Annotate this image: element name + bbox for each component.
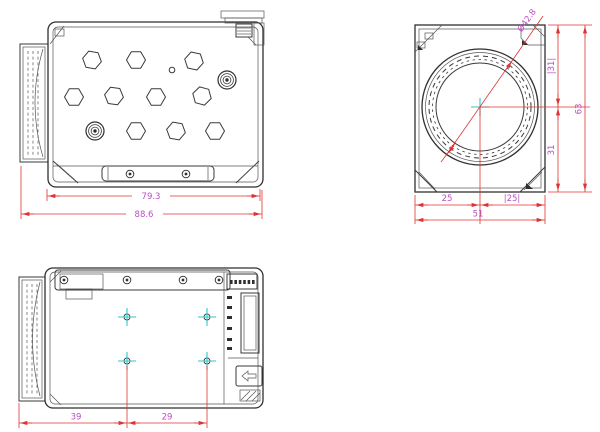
dim-edge-to-hole: 39: [71, 413, 82, 423]
mounting-rail: [53, 166, 258, 181]
pilot-hole: [169, 67, 175, 73]
top-view: 79.3 88.6: [20, 11, 264, 220]
connector-bay: [224, 272, 262, 404]
dim-hole-spacing: 29: [162, 413, 173, 423]
dim-inner-width: 79.3: [142, 192, 161, 202]
bracket-plate: [60, 274, 103, 289]
engineering-drawing: 79.3 88.6: [0, 0, 600, 432]
top-bracket-detail: [221, 11, 264, 45]
lens-barrel-side: [19, 277, 45, 401]
diameter-callout: Ø42.8: [441, 7, 543, 162]
mounting-holes: [118, 308, 216, 370]
dim-center-to-bottom: 31: [547, 145, 557, 156]
hatched-block: [240, 390, 260, 401]
bottom-view: 39 29: [19, 268, 263, 428]
vent-holes: [65, 50, 225, 140]
dim-top-to-center: |31|: [547, 58, 557, 75]
dim-overall-width: 51: [473, 210, 484, 220]
dim-center-to-right: |25|: [504, 194, 521, 204]
front-view-height-dimensions: |31| 31 63: [547, 25, 592, 192]
lens-barrel-side: [20, 44, 48, 162]
screw-fastener: [218, 71, 236, 89]
top-view-dimensions: 79.3 88.6: [21, 166, 262, 220]
dim-lens-diameter: Ø42.8: [515, 7, 539, 34]
eject-arrow-icon: [242, 371, 256, 381]
drawing-canvas: 79.3 88.6: [0, 0, 600, 432]
mounting-rail: [55, 270, 230, 290]
front-view: Ø42.8 25 |25| 51: [415, 7, 592, 224]
dim-overall-height: 63: [575, 104, 585, 115]
dim-overall-width: 88.6: [135, 210, 154, 220]
bottom-view-dimensions: 39 29: [19, 366, 207, 428]
dim-left-to-center: 25: [442, 194, 453, 204]
screw-fastener: [86, 122, 104, 140]
